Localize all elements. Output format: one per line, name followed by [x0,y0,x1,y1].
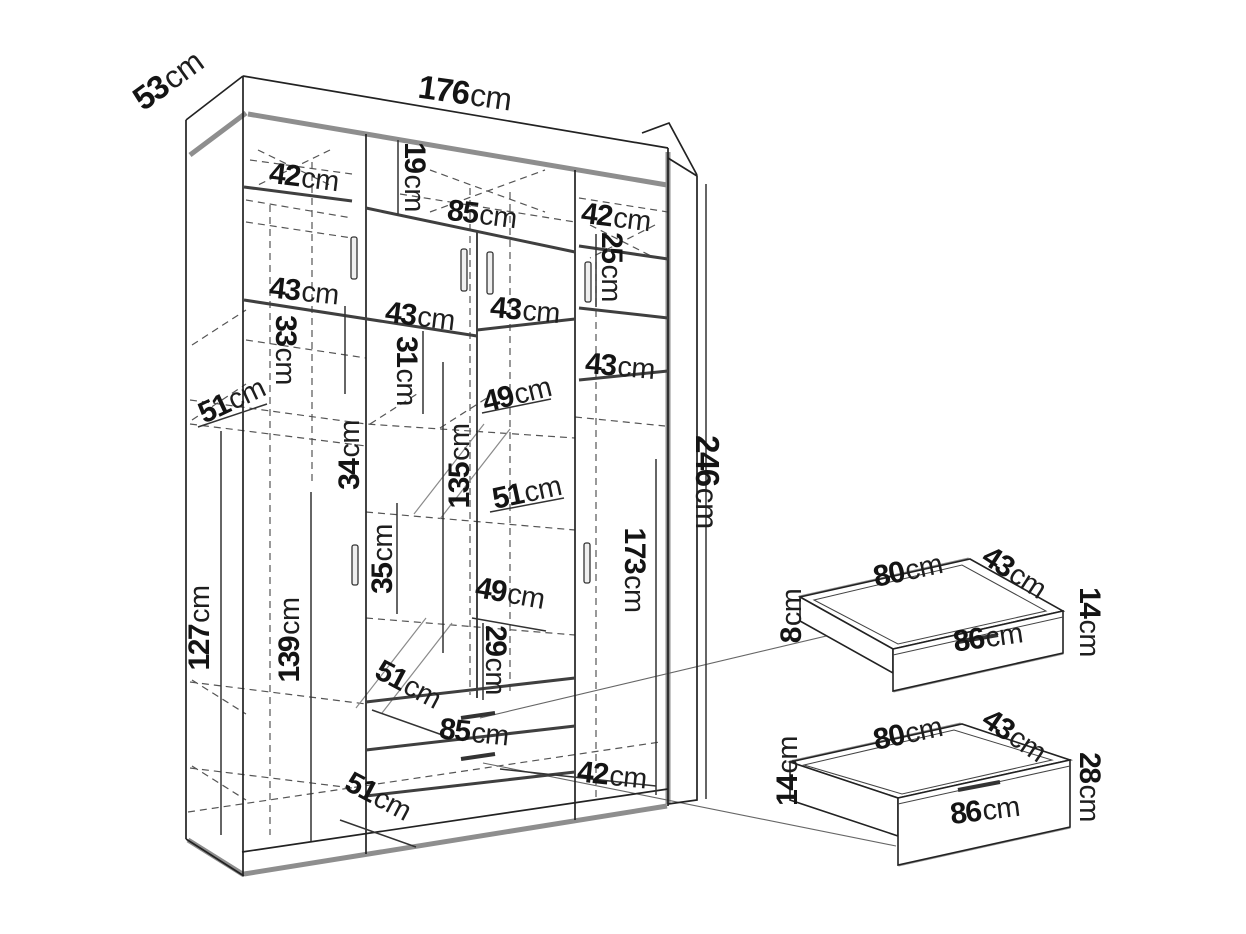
dim-right-door-width: 43cm [584,349,656,385]
dim-drawer-large-side-height: 14cm [773,736,803,806]
dim-drawer-small-front-height: 14cm [1074,587,1104,657]
dim-drawer-small-side-height: 8cm [777,589,807,644]
wardrobe-dimension-diagram: 53cm 176cm 42cm 19cm 85cm 42cm 25cm 43cm… [0,0,1246,934]
dim-left-inner-height: 127cm [185,586,215,671]
wardrobe-outline [186,76,697,876]
diagram-drawing [0,0,1246,934]
dim-top-gap-height: 19cm [399,142,429,212]
dim-mid-upper-height: 34cm [335,420,365,490]
dim-height-total: 246cm [690,435,724,529]
dim-bottom-right-width: 42cm [576,757,649,794]
dim-mid-section-height: 31cm [391,336,421,406]
dim-drawer-large-front-height: 28cm [1074,752,1104,822]
dim-mid-inner-height: 139cm [275,598,305,683]
dim-mirror-height: 135cm [445,424,475,509]
dim-right-shelf-height: 29cm [480,625,510,695]
dim-right-section-height: 173cm [619,528,649,613]
dim-top-right-height: 25cm [596,232,626,302]
dim-left-section-height: 33cm [270,315,300,385]
dim-shelf-mid-right-width: 43cm [489,293,561,329]
dim-mid-lower-height: 35cm [368,524,398,594]
dim-drawer-front-width: 85cm [438,714,511,751]
dim-shelf-left-width: 43cm [268,273,341,310]
